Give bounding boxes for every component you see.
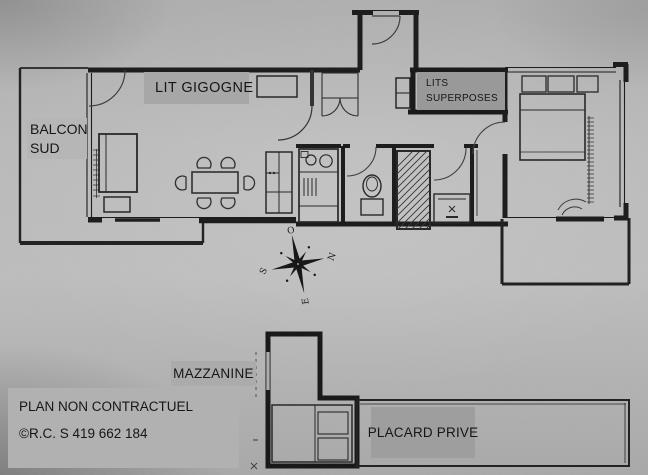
compass-north-label: N [327,251,339,262]
label-lit-gigogne: LIT GIGOGNE [144,72,249,104]
plan-disclaimer-text: PLAN NON CONTRACTUEL [19,399,239,414]
bedroom-window-shutter [587,116,594,204]
label-lits-line1: LITS [426,76,505,91]
dining-table-and-chairs [175,157,254,208]
bedroom-bed [520,76,598,160]
balcony-door-arc [89,70,125,106]
mezzanine-walls [251,334,357,469]
bedroom-corner-arcs [558,199,586,215]
label-mazzanine: MAZZANINE [171,361,256,386]
wc-toilet [347,147,383,215]
compass-rose-icon: O N S E [250,218,347,314]
floor-plan-scan: O N S E LIT GIGOGNE [0,0,648,475]
kitchen-counter [299,149,338,222]
compass-west-label: O [286,226,295,237]
label-lits-line2: SUPERPOSES [426,91,505,106]
kitchen-wc-bath-walls [296,146,508,224]
plan-registration-text: ©R.C. S 419 662 184 [19,426,239,441]
sofa-lit-gigogne [99,134,137,212]
entrance-closet [322,73,358,116]
label-balcon-line1: BALCON [30,120,87,139]
sideboard [257,76,297,97]
plan-disclaimer-box: PLAN NON CONTRACTUEL ©R.C. S 419 662 184 [8,388,239,468]
terrace-outline [502,218,629,284]
compass-south-label: S [258,266,270,276]
mezzanine-bed [272,405,352,462]
bathroom [334,148,505,230]
hall-door-arc [278,70,312,140]
compass-east-label: E [301,297,312,305]
label-placard-prive: PLACARD PRIVE [371,407,475,458]
entrance-hall [352,11,419,109]
shower-hatching [334,150,505,230]
shelving-unit [266,152,292,213]
label-balcon-line2: SUD [30,139,87,158]
label-balcon-sud: BALCON SUD [27,118,87,159]
label-lits-superposes: LITS SUPERPOSES [417,72,505,110]
